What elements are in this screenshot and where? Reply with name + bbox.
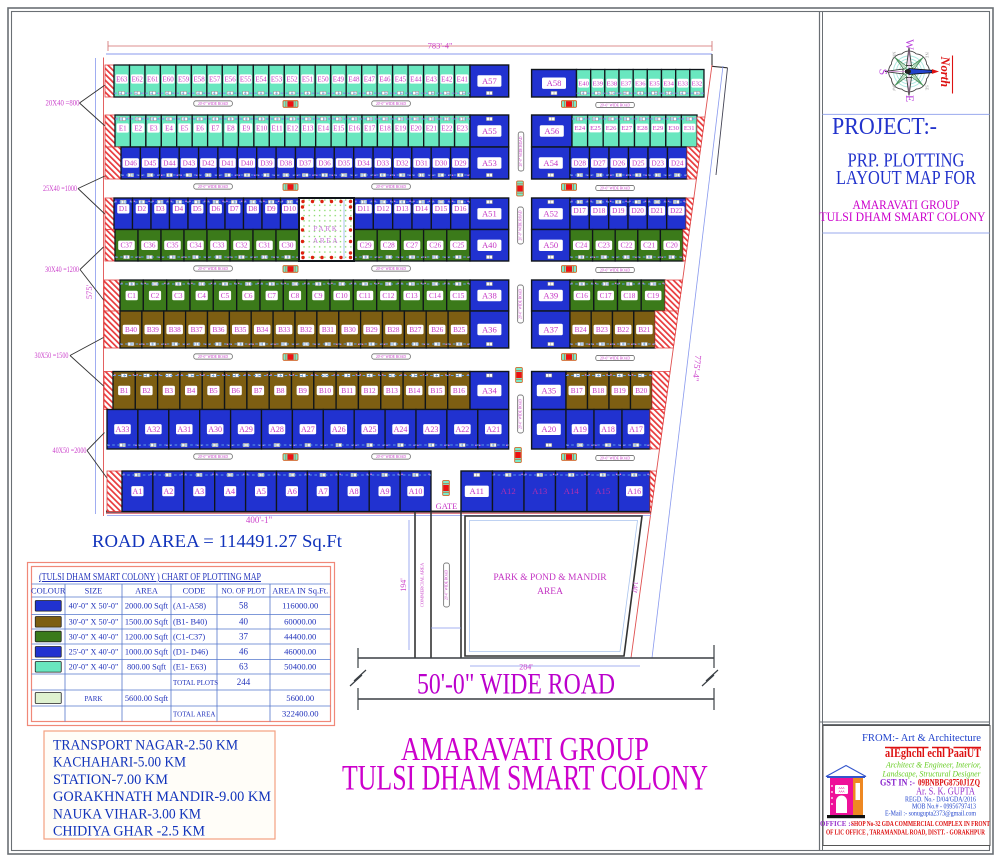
svg-text:20'-0" WIDE ROAD: 20'-0" WIDE ROAD <box>376 455 406 459</box>
svg-text:E13: E13 <box>302 124 314 132</box>
svg-text:58: 58 <box>239 601 249 611</box>
svg-text:30'-0" X 40'-0": 30'-0" X 40'-0" <box>69 632 119 641</box>
svg-text:D8: D8 <box>248 205 257 213</box>
svg-text:D16: D16 <box>454 205 467 213</box>
svg-text:NAUKA VIHAR-3.00 KM: NAUKA VIHAR-3.00 KM <box>53 806 201 822</box>
svg-text:1500.00 Sqft: 1500.00 Sqft <box>125 618 169 627</box>
svg-text:E: E <box>903 95 915 102</box>
svg-text:E55: E55 <box>240 75 252 83</box>
svg-text:KACHAHARI-5.00 KM: KACHAHARI-5.00 KM <box>53 755 186 771</box>
svg-text:E32: E32 <box>692 80 703 87</box>
svg-text:E39: E39 <box>592 80 603 87</box>
svg-text:400'-1": 400'-1" <box>246 515 273 525</box>
svg-text:20'-0" WIDE ROAD: 20'-0" WIDE ROAD <box>376 355 406 359</box>
svg-text:C29: C29 <box>360 242 372 250</box>
svg-text:E51: E51 <box>302 75 314 83</box>
svg-text:E31: E31 <box>684 125 695 132</box>
svg-text:20'-0" WIDE ROAD: 20'-0" WIDE ROAD <box>519 210 523 240</box>
svg-text:E29: E29 <box>653 125 664 132</box>
svg-text:E8: E8 <box>227 124 235 132</box>
svg-text:D13: D13 <box>396 205 409 213</box>
svg-text:D1: D1 <box>119 205 128 213</box>
svg-text:B28: B28 <box>387 326 399 334</box>
svg-text:E3: E3 <box>150 124 158 132</box>
svg-text:E48: E48 <box>348 75 360 83</box>
svg-text:B37: B37 <box>191 326 203 334</box>
svg-text:A18: A18 <box>601 425 615 434</box>
svg-text:D35: D35 <box>338 159 351 167</box>
svg-text:E26: E26 <box>606 125 617 132</box>
svg-text:E47: E47 <box>364 75 376 83</box>
svg-text:PROJECT:-: PROJECT:- <box>832 114 937 140</box>
svg-text:E27: E27 <box>621 125 632 132</box>
svg-text:E5: E5 <box>181 124 189 132</box>
svg-text:W: W <box>903 39 915 50</box>
svg-text:OF LIC OFFICE , TARAMANDAL ROA: OF LIC OFFICE , TARAMANDAL ROAD, DISTT. … <box>826 829 986 837</box>
svg-text:D46: D46 <box>124 159 137 167</box>
svg-text:D36: D36 <box>318 159 331 167</box>
svg-text:E60: E60 <box>163 75 175 83</box>
svg-text:C37: C37 <box>121 242 133 250</box>
svg-text:Architect & Engineer, Interior: Architect & Engineer, Interior, <box>885 761 981 770</box>
svg-text:A53: A53 <box>482 158 497 168</box>
svg-text:A10: A10 <box>409 487 423 496</box>
svg-text:B9: B9 <box>298 387 307 395</box>
svg-text:A11: A11 <box>470 486 484 496</box>
svg-text:C1: C1 <box>127 292 136 300</box>
svg-text:A32: A32 <box>146 425 160 434</box>
svg-text:B35: B35 <box>234 326 246 334</box>
svg-text:20X40 =800: 20X40 =800 <box>46 98 80 108</box>
svg-text:A4: A4 <box>225 487 235 496</box>
svg-text:20'-0" WIDE ROAD: 20'-0" WIDE ROAD <box>376 267 406 271</box>
svg-text:NW: NW <box>892 51 897 59</box>
svg-text:A14: A14 <box>564 486 580 496</box>
svg-text:30X40 =1200: 30X40 =1200 <box>45 264 79 274</box>
svg-text:E20: E20 <box>410 124 422 132</box>
svg-text:A16: A16 <box>627 487 641 496</box>
svg-text:E25: E25 <box>590 125 601 132</box>
svg-text:D38: D38 <box>280 159 293 167</box>
svg-text:COLOUR: COLOUR <box>31 587 66 596</box>
svg-text:A3: A3 <box>194 487 204 496</box>
svg-text:D19: D19 <box>612 207 625 215</box>
svg-text:E41: E41 <box>457 75 469 83</box>
svg-text:E59: E59 <box>178 75 190 83</box>
svg-text:A5: A5 <box>256 487 266 496</box>
svg-text:E58: E58 <box>193 75 205 83</box>
svg-text:REGD. No.- D/04/GDA/2016: REGD. No.- D/04/GDA/2016 <box>905 797 977 804</box>
svg-text:CHIDIYA GHAR -2.5 KM: CHIDIYA GHAR -2.5 KM <box>53 824 205 840</box>
svg-text:A6: A6 <box>287 487 297 496</box>
svg-text:E11: E11 <box>272 124 284 132</box>
svg-text:D33: D33 <box>377 159 390 167</box>
svg-text:C10: C10 <box>336 292 348 300</box>
svg-text:D24: D24 <box>671 159 684 167</box>
svg-text:E63: E63 <box>116 75 128 83</box>
svg-text:E2: E2 <box>134 124 142 132</box>
svg-text:B27: B27 <box>409 326 421 334</box>
svg-text:A33: A33 <box>116 425 130 434</box>
svg-text:GATE: GATE <box>436 501 458 511</box>
svg-text:STATION-7.00 KM: STATION-7.00 KM <box>53 772 168 788</box>
svg-text:25'-0" X 40'-0": 25'-0" X 40'-0" <box>69 648 119 657</box>
svg-text:2000.00 Sqft: 2000.00 Sqft <box>125 602 169 611</box>
svg-text:A51: A51 <box>482 209 497 219</box>
svg-text:A15: A15 <box>595 486 611 496</box>
svg-text:322400.00: 322400.00 <box>282 709 319 719</box>
svg-text:A52: A52 <box>543 209 558 219</box>
svg-text:E17: E17 <box>364 124 376 132</box>
svg-text:C30: C30 <box>282 242 294 250</box>
svg-text:D12: D12 <box>377 205 390 213</box>
svg-text:46000.00: 46000.00 <box>284 647 316 657</box>
svg-text:TOTAL AREA: TOTAL AREA <box>173 711 215 719</box>
svg-text:D34: D34 <box>357 159 370 167</box>
svg-text:MOB No.# - 09956797413: MOB No.# - 09956797413 <box>912 804 977 811</box>
svg-text:D25: D25 <box>632 159 645 167</box>
svg-text:D44: D44 <box>163 159 176 167</box>
svg-text:50'-0" WIDE ROAD: 50'-0" WIDE ROAD <box>417 668 615 701</box>
svg-text:B21: B21 <box>638 326 650 334</box>
svg-text:B2: B2 <box>142 387 151 395</box>
svg-text:A35: A35 <box>541 385 556 395</box>
svg-text:A56: A56 <box>544 126 560 136</box>
svg-text:B5: B5 <box>209 387 218 395</box>
svg-text:A27: A27 <box>301 425 315 434</box>
svg-text:D39: D39 <box>260 159 273 167</box>
svg-text:D20: D20 <box>631 207 644 215</box>
svg-text:20'-0" WIDE ROAD: 20'-0" WIDE ROAD <box>198 267 228 271</box>
svg-text:A38: A38 <box>482 290 497 300</box>
svg-text:E45: E45 <box>395 75 407 83</box>
svg-text:(C1-C37): (C1-C37) <box>173 632 205 641</box>
svg-text:B12: B12 <box>364 387 376 395</box>
svg-text:E16: E16 <box>349 124 361 132</box>
svg-text:E36: E36 <box>635 80 646 87</box>
svg-text:B31: B31 <box>322 326 334 334</box>
svg-text:A37: A37 <box>543 324 559 334</box>
svg-text:C35: C35 <box>167 242 179 250</box>
svg-text:NO. OF PLOT: NO. OF PLOT <box>222 587 266 596</box>
svg-text:(D1- D46): (D1- D46) <box>173 648 208 657</box>
svg-text:D32: D32 <box>396 159 409 167</box>
svg-text:20'-0" WIDE ROAD: 20'-0" WIDE ROAD <box>600 456 630 460</box>
svg-text:C23: C23 <box>598 242 610 250</box>
svg-text:20'-0" WIDE ROAD: 20'-0" WIDE ROAD <box>376 185 406 189</box>
svg-text:B13: B13 <box>386 387 398 395</box>
svg-text:A21: A21 <box>486 425 500 434</box>
svg-text:A57: A57 <box>482 76 498 86</box>
svg-text:20'-0" WIDE ROAD: 20'-0" WIDE ROAD <box>198 355 228 359</box>
svg-text:5600.00 Sqft: 5600.00 Sqft <box>125 694 169 703</box>
svg-text:B15: B15 <box>431 387 443 395</box>
svg-text:B38: B38 <box>169 326 181 334</box>
svg-text:C33: C33 <box>213 242 225 250</box>
svg-text:C26: C26 <box>429 242 441 250</box>
svg-text:E33: E33 <box>677 80 688 87</box>
svg-text:D42: D42 <box>202 159 215 167</box>
svg-text:AAA: AAA <box>838 790 844 794</box>
svg-text:D17: D17 <box>573 207 586 215</box>
svg-text:C11: C11 <box>359 292 371 300</box>
svg-text:A50: A50 <box>543 240 558 250</box>
svg-text:D29: D29 <box>454 159 467 167</box>
svg-text:A29: A29 <box>239 425 253 434</box>
svg-text:D7: D7 <box>230 205 239 213</box>
svg-text:A55: A55 <box>482 126 497 136</box>
svg-text:A20: A20 <box>541 424 556 434</box>
svg-text:D30: D30 <box>435 159 448 167</box>
svg-text:AREA IN Sq.Ft.: AREA IN Sq.Ft. <box>272 587 328 596</box>
svg-text:A58: A58 <box>547 78 562 88</box>
svg-text:D9: D9 <box>267 205 276 213</box>
svg-text:D43: D43 <box>183 159 196 167</box>
svg-text:20'-0" WIDE ROAD: 20'-0" WIDE ROAD <box>519 289 523 319</box>
svg-text:D5: D5 <box>193 205 202 213</box>
svg-text:B34: B34 <box>256 326 268 334</box>
svg-text:C9: C9 <box>314 292 323 300</box>
svg-text:C36: C36 <box>144 242 156 250</box>
svg-text:E9: E9 <box>242 124 250 132</box>
svg-text:A9: A9 <box>380 487 390 496</box>
svg-text:E23: E23 <box>457 124 469 132</box>
svg-text:C7: C7 <box>267 292 276 300</box>
svg-text:A12: A12 <box>501 486 516 496</box>
svg-text:30'-0" X 50'-0": 30'-0" X 50'-0" <box>69 618 119 627</box>
svg-text:E10: E10 <box>256 124 268 132</box>
svg-text:D27: D27 <box>593 159 606 167</box>
svg-text:D28: D28 <box>574 159 587 167</box>
svg-text:B19: B19 <box>614 387 626 395</box>
svg-text:E24: E24 <box>575 125 586 132</box>
svg-text:B16: B16 <box>453 387 465 395</box>
svg-text:C27: C27 <box>406 242 418 250</box>
svg-text:783'-4": 783'-4" <box>428 41 453 51</box>
svg-text:20'-0" WIDE ROAD: 20'-0" WIDE ROAD <box>600 356 630 360</box>
svg-text:244: 244 <box>237 677 251 687</box>
svg-text:A8: A8 <box>349 487 359 496</box>
svg-text:E61: E61 <box>147 75 159 83</box>
svg-text:C24: C24 <box>575 242 587 250</box>
svg-text:SW: SW <box>892 84 897 92</box>
svg-text:E44: E44 <box>410 75 422 83</box>
svg-text:E-Mail :- sonugupta2373@gmail.: E-Mail :- sonugupta2373@gmail.com <box>885 811 977 818</box>
svg-text:20'-0" WIDE ROAD: 20'-0" WIDE ROAD <box>376 102 406 106</box>
svg-text:E62: E62 <box>132 75 144 83</box>
svg-text:NE: NE <box>924 52 929 58</box>
svg-text:20'-0" WIDE ROAD: 20'-0" WIDE ROAD <box>600 103 630 107</box>
svg-text:E57: E57 <box>209 75 221 83</box>
svg-text:D45: D45 <box>144 159 157 167</box>
svg-text:140': 140' <box>630 581 639 594</box>
svg-text:B14: B14 <box>408 387 420 395</box>
svg-text:C34: C34 <box>190 242 202 250</box>
svg-text:E19: E19 <box>395 124 407 132</box>
svg-text:C28: C28 <box>383 242 395 250</box>
svg-text:A40: A40 <box>482 240 497 250</box>
svg-text:GORAKHNATH MANDIR-9.00 KM: GORAKHNATH MANDIR-9.00 KM <box>53 789 271 805</box>
svg-text:E50: E50 <box>317 75 329 83</box>
svg-text:20'-0" WIDE ROAD: 20'-0" WIDE ROAD <box>198 455 228 459</box>
svg-text:E52: E52 <box>286 75 298 83</box>
svg-text:E18: E18 <box>379 124 391 132</box>
svg-text:44400.00: 44400.00 <box>284 631 316 641</box>
svg-text:A30: A30 <box>208 425 222 434</box>
svg-text:CODE: CODE <box>183 587 206 596</box>
svg-text:B33: B33 <box>278 326 290 334</box>
svg-text:B7: B7 <box>254 387 263 395</box>
svg-text:A31: A31 <box>177 425 191 434</box>
svg-text:A25: A25 <box>363 425 377 434</box>
svg-text:D10: D10 <box>284 205 297 213</box>
svg-text:C18: C18 <box>623 292 635 300</box>
svg-text:D22: D22 <box>670 207 683 215</box>
svg-text:AREA: AREA <box>537 587 563 597</box>
svg-text:E49: E49 <box>333 75 345 83</box>
svg-text:AREA: AREA <box>313 236 339 245</box>
svg-text:E34: E34 <box>663 80 674 87</box>
svg-text:C12: C12 <box>382 292 394 300</box>
svg-text:B10: B10 <box>319 387 331 395</box>
svg-text:C6: C6 <box>244 292 253 300</box>
svg-text:TULSI DHAM SMART COLONY: TULSI DHAM SMART COLONY <box>820 210 986 224</box>
svg-text:50400.00: 50400.00 <box>284 662 316 672</box>
svg-text:5600.00: 5600.00 <box>286 693 314 703</box>
svg-text:A26: A26 <box>332 425 346 434</box>
svg-text:37: 37 <box>239 631 249 641</box>
svg-text:116000.00: 116000.00 <box>282 601 318 611</box>
svg-text:A13: A13 <box>532 486 548 496</box>
svg-text:20'-0" WIDE ROAD: 20'-0" WIDE ROAD <box>600 268 630 272</box>
svg-text:B32: B32 <box>300 326 312 334</box>
svg-text:E7: E7 <box>211 124 219 132</box>
svg-text:C21: C21 <box>643 242 655 250</box>
svg-text:D26: D26 <box>613 159 626 167</box>
svg-text:B6: B6 <box>232 387 241 395</box>
svg-text:A36: A36 <box>482 324 498 334</box>
svg-text:E35: E35 <box>649 80 660 87</box>
svg-text:D40: D40 <box>241 159 254 167</box>
svg-text:1000.00 Sqft: 1000.00 Sqft <box>125 648 169 657</box>
svg-text:PARK: PARK <box>313 224 338 233</box>
svg-text:194': 194' <box>399 578 408 592</box>
svg-text:40X50 =2000: 40X50 =2000 <box>53 445 87 455</box>
svg-text:North: North <box>938 56 952 88</box>
svg-text:60000.00: 60000.00 <box>284 617 316 627</box>
svg-text:B17: B17 <box>571 387 583 395</box>
svg-text:E22: E22 <box>441 124 453 132</box>
svg-text:E40: E40 <box>578 80 589 87</box>
svg-text:C14: C14 <box>429 292 441 300</box>
svg-text:E12: E12 <box>287 124 299 132</box>
svg-text:C5: C5 <box>221 292 230 300</box>
svg-text:D4: D4 <box>174 205 183 213</box>
svg-text:A28: A28 <box>270 425 284 434</box>
svg-text:D18: D18 <box>593 207 606 215</box>
svg-text:D6: D6 <box>211 205 220 213</box>
svg-text:AREA: AREA <box>135 587 158 596</box>
svg-text:800.00 Sqft: 800.00 Sqft <box>127 663 167 672</box>
svg-text:E37: E37 <box>621 80 632 87</box>
svg-text:B22: B22 <box>617 326 629 334</box>
svg-text:E28: E28 <box>637 125 648 132</box>
svg-text:D21: D21 <box>651 207 664 215</box>
svg-text:SIZE: SIZE <box>85 587 103 596</box>
svg-text:B11: B11 <box>341 387 353 395</box>
svg-text:C17: C17 <box>600 292 612 300</box>
svg-text:E1: E1 <box>119 124 127 132</box>
svg-text:FROM:- Art & Architecture: FROM:- Art & Architecture <box>862 732 981 744</box>
svg-text:20'-0" WIDE ROAD: 20'-0" WIDE ROAD <box>445 570 449 600</box>
svg-text:A17: A17 <box>629 425 643 434</box>
svg-text:PARK & POND & MANDIR: PARK & POND & MANDIR <box>493 573 607 583</box>
svg-text:SE: SE <box>924 85 929 91</box>
svg-text:C32: C32 <box>236 242 248 250</box>
svg-text:A23: A23 <box>425 425 439 434</box>
svg-text:S: S <box>876 69 888 75</box>
svg-text:(E1- E63): (E1- E63) <box>173 663 206 672</box>
svg-text:20'-0" WIDE ROAD: 20'-0" WIDE ROAD <box>198 102 228 106</box>
svg-text:PARK: PARK <box>84 695 102 703</box>
svg-text:TULSI DHAM SMART COLONY: TULSI DHAM SMART COLONY <box>342 758 708 798</box>
svg-text:20'-0" WIDE ROAD: 20'-0" WIDE ROAD <box>519 136 523 166</box>
svg-text:C4: C4 <box>197 292 206 300</box>
svg-text:A54: A54 <box>543 158 559 168</box>
svg-text:E43: E43 <box>426 75 438 83</box>
svg-text:E14: E14 <box>318 124 330 132</box>
svg-text:C2: C2 <box>151 292 160 300</box>
svg-text:575': 575' <box>84 284 94 299</box>
svg-text:D23: D23 <box>652 159 665 167</box>
svg-text:TRANSPORT NAGAR-2.50 KM: TRANSPORT NAGAR-2.50 KM <box>53 738 238 754</box>
svg-text:A19: A19 <box>573 425 587 434</box>
svg-text:B3: B3 <box>165 387 174 395</box>
svg-text:E53: E53 <box>271 75 283 83</box>
svg-text:E54: E54 <box>255 75 267 83</box>
svg-text:D14: D14 <box>415 205 428 213</box>
svg-text:E42: E42 <box>441 75 453 83</box>
svg-text:D31: D31 <box>415 159 428 167</box>
svg-text:C19: C19 <box>647 292 659 300</box>
svg-text:20'-0" WIDE ROAD: 20'-0" WIDE ROAD <box>519 399 523 429</box>
svg-text:B18: B18 <box>592 387 604 395</box>
svg-text:(A1-A58): (A1-A58) <box>173 602 206 611</box>
svg-text:D3: D3 <box>156 205 165 213</box>
svg-text:B8: B8 <box>276 387 285 395</box>
svg-text:A39: A39 <box>543 290 558 300</box>
svg-text:B36: B36 <box>212 326 224 334</box>
svg-text:E15: E15 <box>333 124 345 132</box>
svg-text:E6: E6 <box>196 124 204 132</box>
svg-text:C20: C20 <box>666 242 678 250</box>
svg-text:(B1- B40): (B1- B40) <box>173 618 207 627</box>
svg-text:D15: D15 <box>435 205 448 213</box>
svg-text:A34: A34 <box>482 385 498 395</box>
svg-text:OFFICE :-: OFFICE :- <box>820 820 854 828</box>
svg-text:SHOP No-32 GDA COMMERCIAL COMP: SHOP No-32 GDA COMMERCIAL COMPLEX IN FRO… <box>851 820 990 828</box>
svg-text:C15: C15 <box>452 292 464 300</box>
svg-text:E46: E46 <box>379 75 391 83</box>
svg-text:25X40 =1000: 25X40 =1000 <box>43 183 77 193</box>
svg-text:LAYOUT MAP FOR: LAYOUT MAP FOR <box>836 167 977 189</box>
svg-text:C22: C22 <box>621 242 633 250</box>
svg-text:63: 63 <box>239 662 249 672</box>
svg-text:20'-0" WIDE ROAD: 20'-0" WIDE ROAD <box>600 186 630 190</box>
svg-text:C8: C8 <box>291 292 300 300</box>
svg-text:B20: B20 <box>635 387 647 395</box>
svg-text:(TULSI DHAM SMART COLONY ) CHA: (TULSI DHAM SMART COLONY ) CHART OF PLOT… <box>39 572 261 583</box>
